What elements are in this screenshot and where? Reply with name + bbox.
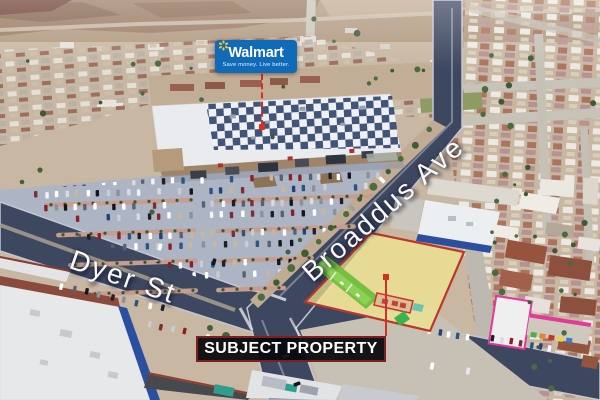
walmart-wordmark: Walmart <box>228 46 283 61</box>
subject-property-leader-dot <box>383 274 389 280</box>
solar-panel-roof <box>206 96 400 150</box>
walmart-leader-line <box>261 74 263 126</box>
walmart-sign-callout: Walmart Save money. Live better. <box>215 40 297 73</box>
subject-property-leader-line <box>385 278 387 336</box>
walmart-spark-icon <box>218 40 229 51</box>
walmart-leader-dot <box>259 124 265 130</box>
subject-property-label: SUBJECT PROPERTY <box>196 336 386 362</box>
walmart-tagline: Save money. Live better. <box>223 62 290 68</box>
atmospheric-haze <box>0 0 600 70</box>
entrance-canopy <box>252 176 277 188</box>
subject-property-label-text: SUBJECT PROPERTY <box>204 340 378 358</box>
aerial-marketing-image: Dyer St Broaddus Ave Walmart Save money.… <box>0 0 600 400</box>
